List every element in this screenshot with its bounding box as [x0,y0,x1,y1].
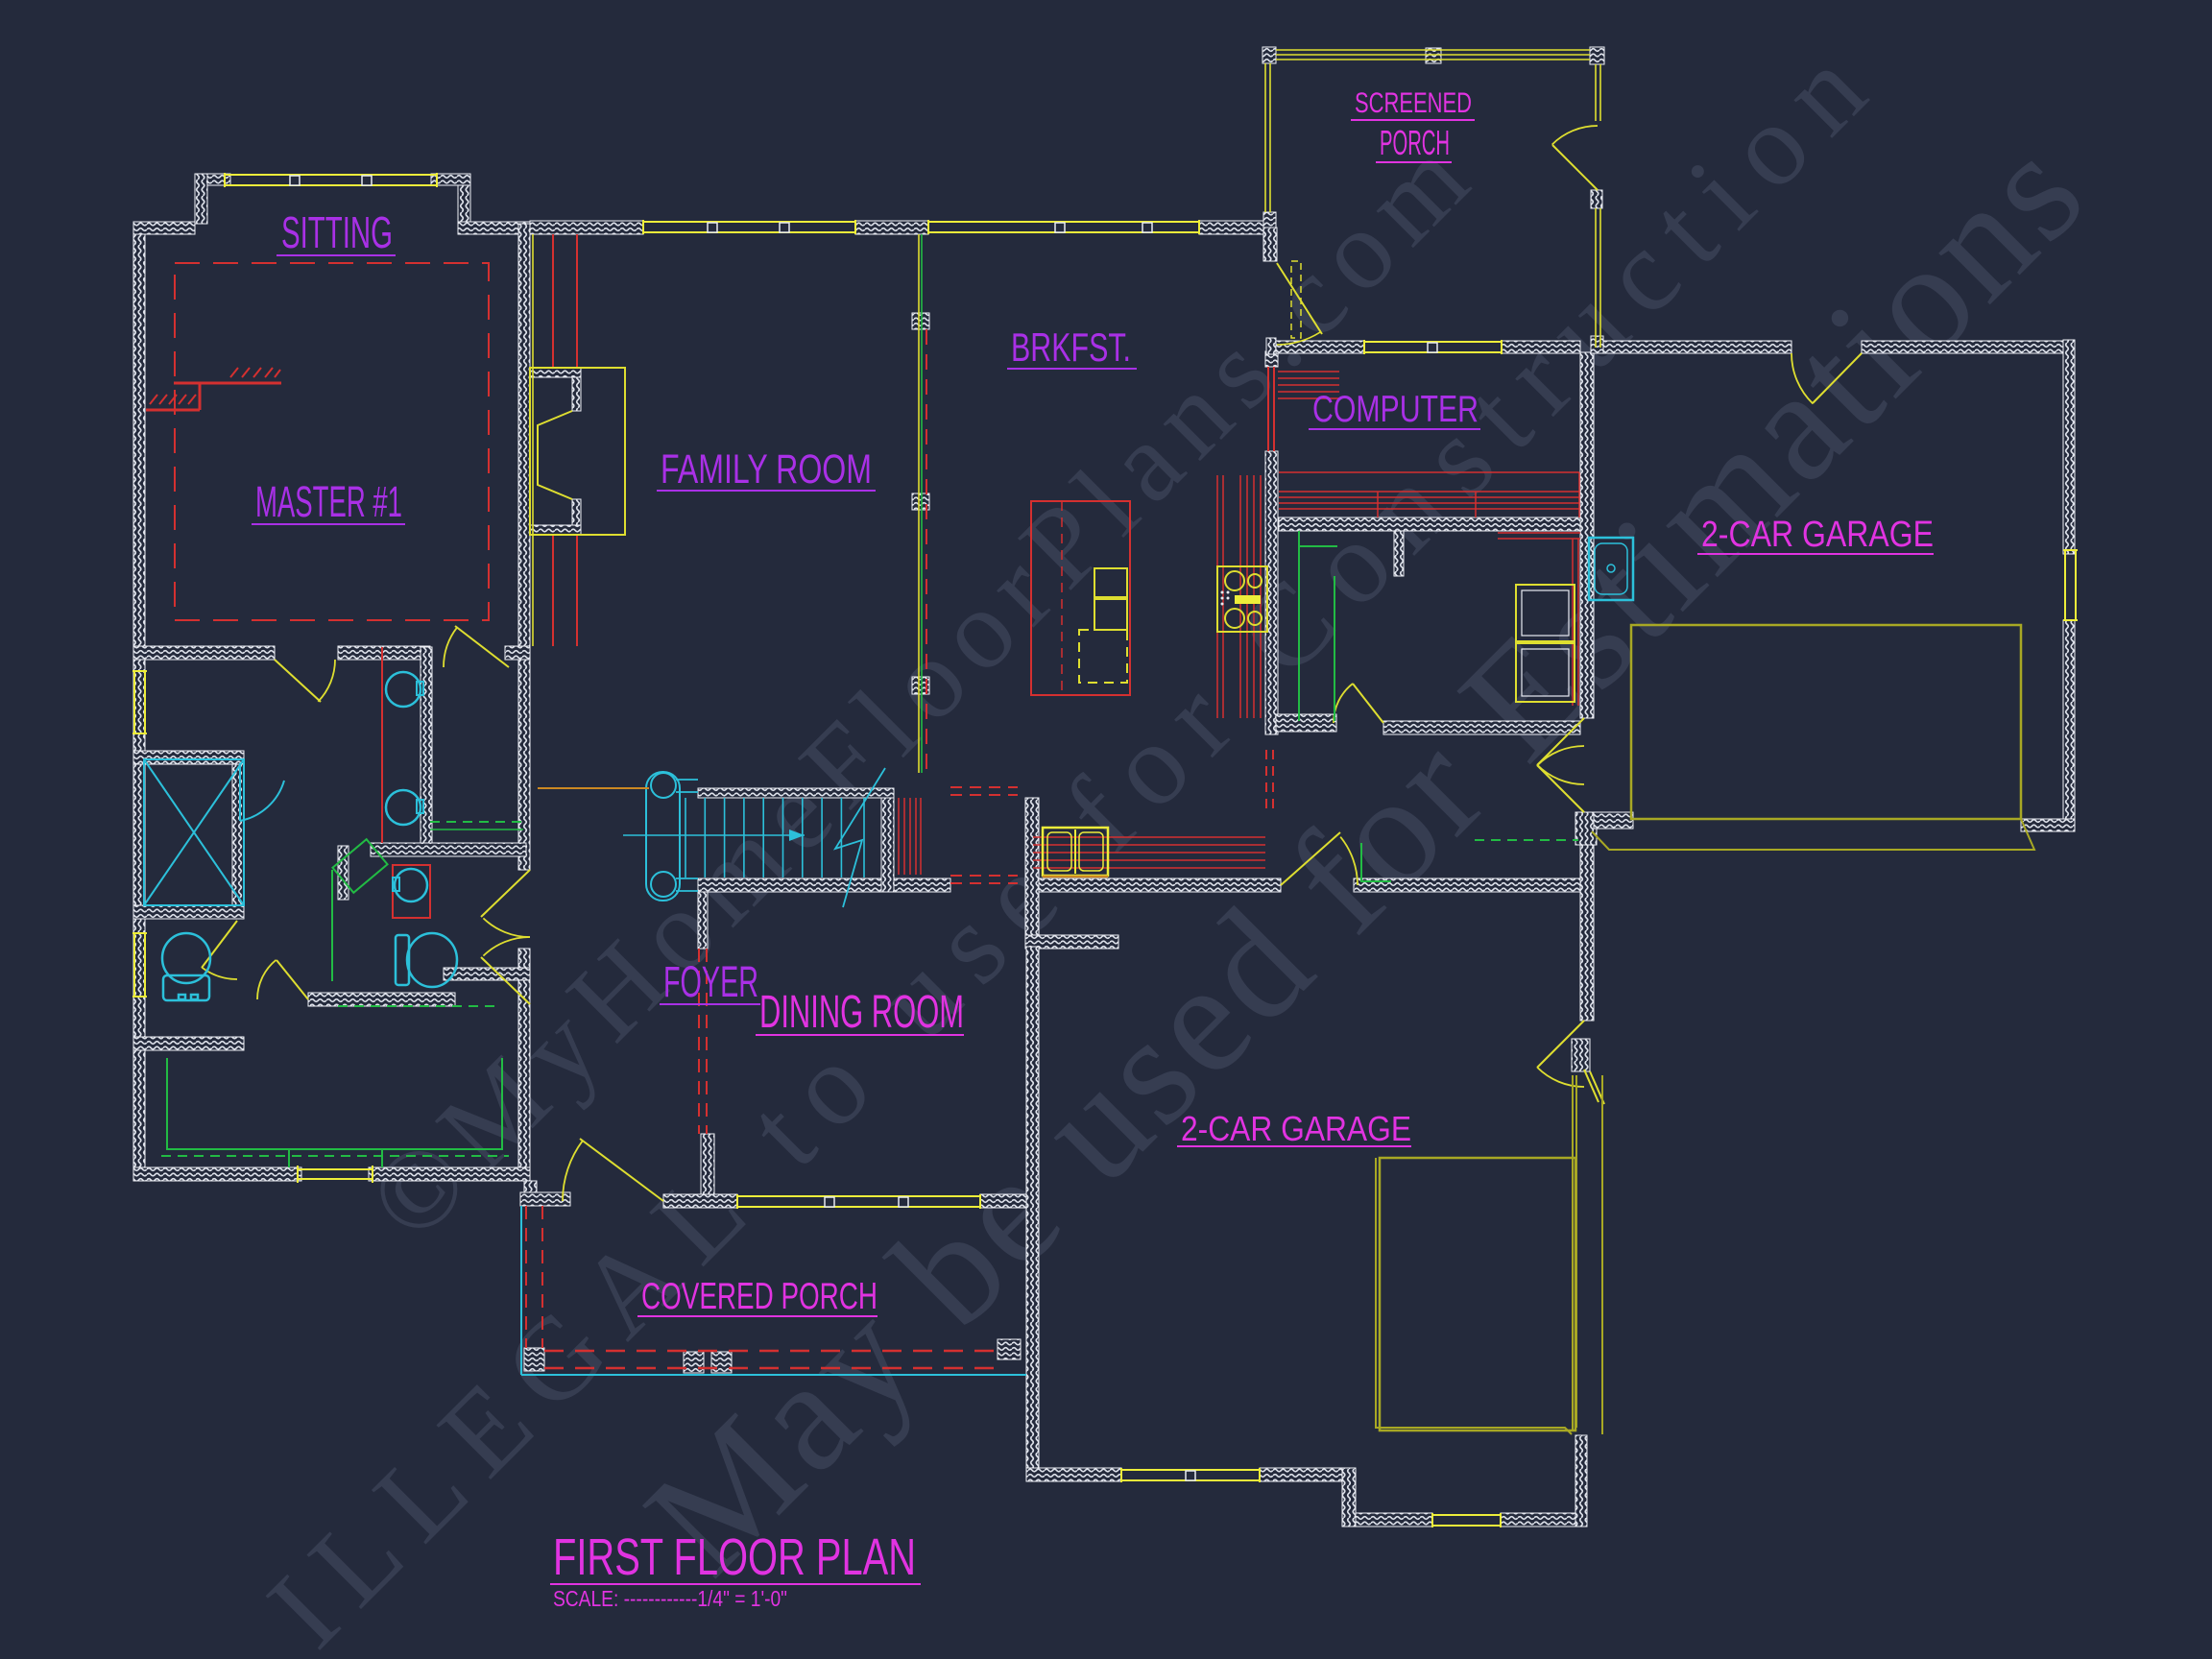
svg-text:SCALE: ------------1/4" = 1'-0: SCALE: ------------1/4" = 1'-0" [553,1586,787,1611]
svg-text:2-CAR GARAGE: 2-CAR GARAGE [1701,515,1934,555]
svg-text:SCREENED: SCREENED [1355,87,1472,119]
svg-text:COVERED PORCH: COVERED PORCH [641,1276,878,1317]
svg-text:2-CAR GARAGE: 2-CAR GARAGE [1181,1109,1411,1148]
svg-text:COMPUTER: COMPUTER [1312,389,1479,430]
svg-text:DINING ROOM: DINING ROOM [759,987,964,1038]
svg-text:FOYER: FOYER [663,957,758,1006]
svg-text:PORCH: PORCH [1380,123,1450,162]
svg-text:SITTING: SITTING [281,207,393,257]
svg-text:FAMILY ROOM: FAMILY ROOM [661,446,872,493]
svg-text:FIRST FLOOR PLAN: FIRST FLOOR PLAN [553,1528,916,1586]
svg-text:MASTER #1: MASTER #1 [255,477,402,526]
svg-text:BRKFST.: BRKFST. [1011,325,1131,370]
